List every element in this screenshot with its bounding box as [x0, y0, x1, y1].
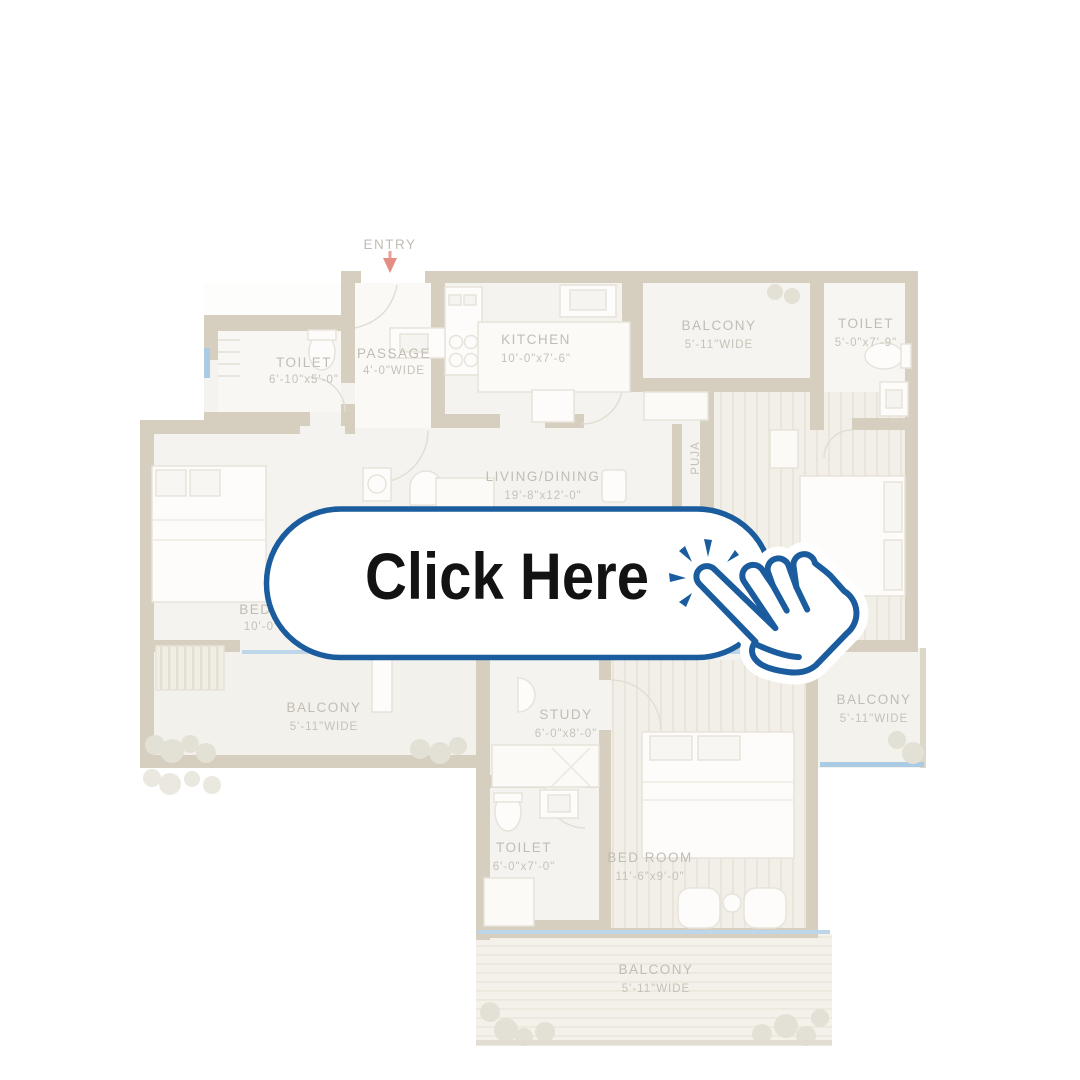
svg-text:5'-11"WIDE: 5'-11"WIDE — [685, 339, 753, 351]
svg-text:4'-0"WIDE: 4'-0"WIDE — [363, 365, 425, 377]
svg-text:PASSAGE: PASSAGE — [357, 346, 431, 361]
svg-text:5'-11"WIDE: 5'-11"WIDE — [622, 983, 690, 995]
svg-text:KITCHEN: KITCHEN — [501, 332, 571, 347]
svg-text:PUJA: PUJA — [690, 441, 702, 474]
svg-text:10'-0"x7'-6": 10'-0"x7'-6" — [501, 353, 571, 365]
svg-text:11'-6"x9'-0": 11'-6"x9'-0" — [615, 871, 684, 883]
svg-text:BED ROOM: BED ROOM — [607, 850, 693, 865]
svg-text:5'-11"WIDE: 5'-11"WIDE — [840, 713, 908, 725]
svg-text:5'-11"WIDE: 5'-11"WIDE — [290, 721, 358, 733]
svg-text:LIVING/DINING: LIVING/DINING — [486, 469, 601, 484]
svg-text:STUDY: STUDY — [539, 707, 592, 722]
svg-text:5'-0"x7'-9": 5'-0"x7'-9" — [835, 337, 898, 349]
svg-text:TOILET: TOILET — [276, 355, 332, 370]
svg-text:BALCONY: BALCONY — [286, 700, 361, 715]
svg-text:BALCONY: BALCONY — [618, 962, 693, 977]
svg-text:6'-10"x5'-0": 6'-10"x5'-0" — [269, 374, 339, 386]
svg-text:TOILET: TOILET — [496, 840, 552, 855]
svg-text:BALCONY: BALCONY — [836, 692, 911, 707]
svg-text:6'-0"x7'-0": 6'-0"x7'-0" — [493, 861, 556, 873]
svg-text:6'-0"x8'-0": 6'-0"x8'-0" — [535, 728, 598, 740]
svg-text:19'-8"x12'-0": 19'-8"x12'-0" — [504, 490, 581, 502]
svg-text:BALCONY: BALCONY — [681, 318, 756, 333]
svg-text:TOILET: TOILET — [838, 316, 894, 331]
svg-text:ENTRY: ENTRY — [363, 237, 416, 252]
svg-text:Click Here: Click Here — [365, 541, 649, 614]
